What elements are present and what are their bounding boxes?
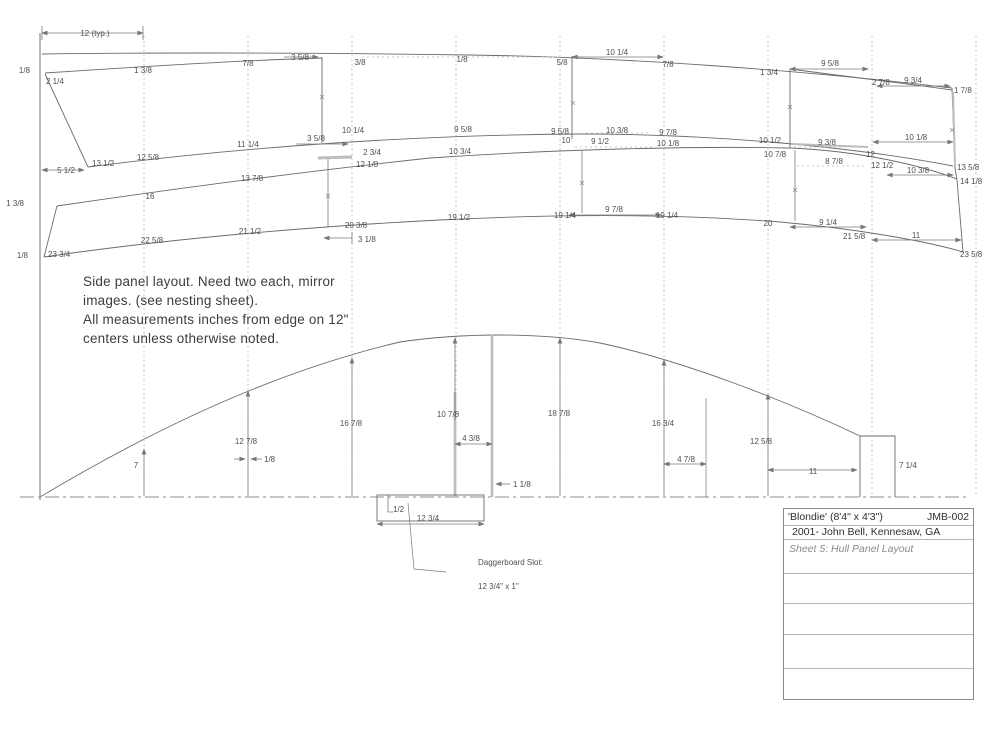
note-text: Side panel layout. Need two each, mirror… [83,272,413,348]
dim-label: 21 5/8 [843,232,866,241]
dim-label: 2 7/8 [872,78,890,87]
dim-label: 4 3/8 [462,434,480,443]
dim-label: 12 [866,150,875,159]
sheet-title: Sheet 5: Hull Panel Layout [789,543,913,555]
dim-label: 9 5/8 [821,59,839,68]
drawing-sheet: 12 (typ.)1/82 1/41 3/87/83 5/83/81/85/81… [0,0,999,729]
dim-label: 18 7/8 [548,409,571,418]
dim-label: 12 3/4" x 1" [478,582,519,591]
dim-label: 12 5/8 [750,437,773,446]
dim-label: 10 [562,136,571,145]
dim-label: 13 1/2 [92,159,115,168]
dim-label: 10 3/8 [606,126,629,135]
dim-label: 10 1/4 [342,126,365,135]
dim-label: 3/8 [354,58,366,67]
dim-label: 9 3/4 [904,76,922,85]
dim-label: 20 [764,219,773,228]
dim-label: 1/8 [456,55,468,64]
dim-label: 9 5/8 [551,127,569,136]
dim-label: 7 [134,461,139,470]
dim-label: 10 1/4 [606,48,629,57]
dim-label: 12 7/8 [235,437,258,446]
dim-label: 10 1/2 [759,136,782,145]
dim-label: 2 1/4 [46,77,64,86]
dimension-lines-lower [144,338,857,572]
title-block-divider [784,603,973,604]
note-line: All measurements inches from edge on 12" [83,310,413,329]
dim-label: 19 1/4 [656,211,679,220]
drawing-number: JMB-002 [927,511,969,523]
dim-label: 1/8 [19,66,31,75]
dim-label: 10 1/8 [905,133,928,142]
dim-label: 10 1/8 [657,139,680,148]
dim-label: 3 1/8 [358,235,376,244]
dim-label: 12 1/2 [871,161,894,170]
dim-label: 12 3/4 [417,514,440,523]
dim-label: 3 5/8 [307,134,325,143]
dim-label: 10 3/8 [907,166,930,175]
dim-label: Daggerboard Slot: [478,558,543,567]
title-block: 'Blondie' (8'4" x 4'3") JMB-002 2001- Jo… [783,508,974,700]
dim-label: 13 5/8 [957,163,980,172]
dim-label: 9 1/2 [591,137,609,146]
dim-label: 2 3/4 [363,148,381,157]
note-line: centers unless otherwise noted. [83,329,413,348]
dim-label: 21 1/2 [239,227,262,236]
dim-label: 9 1/4 [819,218,837,227]
dim-label: 4 7/8 [677,455,695,464]
dim-label: 12 5/8 [137,153,160,162]
dim-label: 9 3/8 [818,138,836,147]
dim-label: 7 1/4 [899,461,917,470]
dim-label: 9 7/8 [605,205,623,214]
dim-label: 7/8 [662,60,674,69]
dim-label: 5 1/2 [57,166,75,175]
dim-label: 8 7/8 [825,157,843,166]
dim-label: 11 1/4 [237,140,259,149]
title-block-divider [784,573,973,574]
dim-label: 1/2 [393,505,405,514]
dim-label: 16 7/8 [340,419,363,428]
title-block-divider [784,634,973,635]
dim-label: 19 1/2 [448,213,471,222]
dim-label: 10 3/4 [449,147,472,156]
dim-label: 23 3/4 [48,250,71,259]
dim-label: 1/8 [17,251,29,260]
dim-label: 20 3/8 [345,221,368,230]
station-grid-lines [40,36,976,497]
dim-label: 11 [809,467,818,476]
dim-label: 5/8 [556,58,568,67]
bottom-panel-outline [40,335,895,497]
dim-label: 12 1/8 [356,160,379,169]
dim-label: 1 7/8 [954,86,972,95]
dim-label: 1 3/4 [760,68,778,77]
dim-label: 14 1/8 [960,177,983,186]
boat-title: 'Blondie' (8'4" x 4'3") [788,511,883,523]
note-line: Side panel layout. Need two each, mirror [83,272,413,291]
dim-label: 19 1/4 [554,211,577,220]
dim-label: 1 3/8 [134,66,152,75]
dim-label: 16 [146,192,155,201]
dim-label: 3 5/8 [291,53,309,62]
dim-label: 13 7/8 [241,174,264,183]
dim-label: 11 [912,231,921,240]
dim-label: 9 7/8 [659,128,677,137]
dim-label: 12 (typ.) [80,29,110,38]
dim-label: 7/8 [242,59,254,68]
note-line: images. (see nesting sheet). [83,291,413,310]
dim-label: 9 5/8 [454,125,472,134]
dim-label: 22 5/8 [141,236,164,245]
title-block-divider [784,539,973,540]
credit-line: 2001- John Bell, Kennesaw, GA [792,526,940,538]
dim-label: 1 3/8 [6,199,24,208]
title-block-divider [784,668,973,669]
dim-label: 1 1/8 [513,480,531,489]
dim-label: 10 7/8 [437,410,460,419]
dim-label: 1/8 [264,455,276,464]
dim-label: 10 7/8 [764,150,787,159]
dim-label: 16 3/4 [652,419,675,428]
dim-label: 23 5/8 [960,250,983,259]
slot-highlight-lines [455,335,492,497]
